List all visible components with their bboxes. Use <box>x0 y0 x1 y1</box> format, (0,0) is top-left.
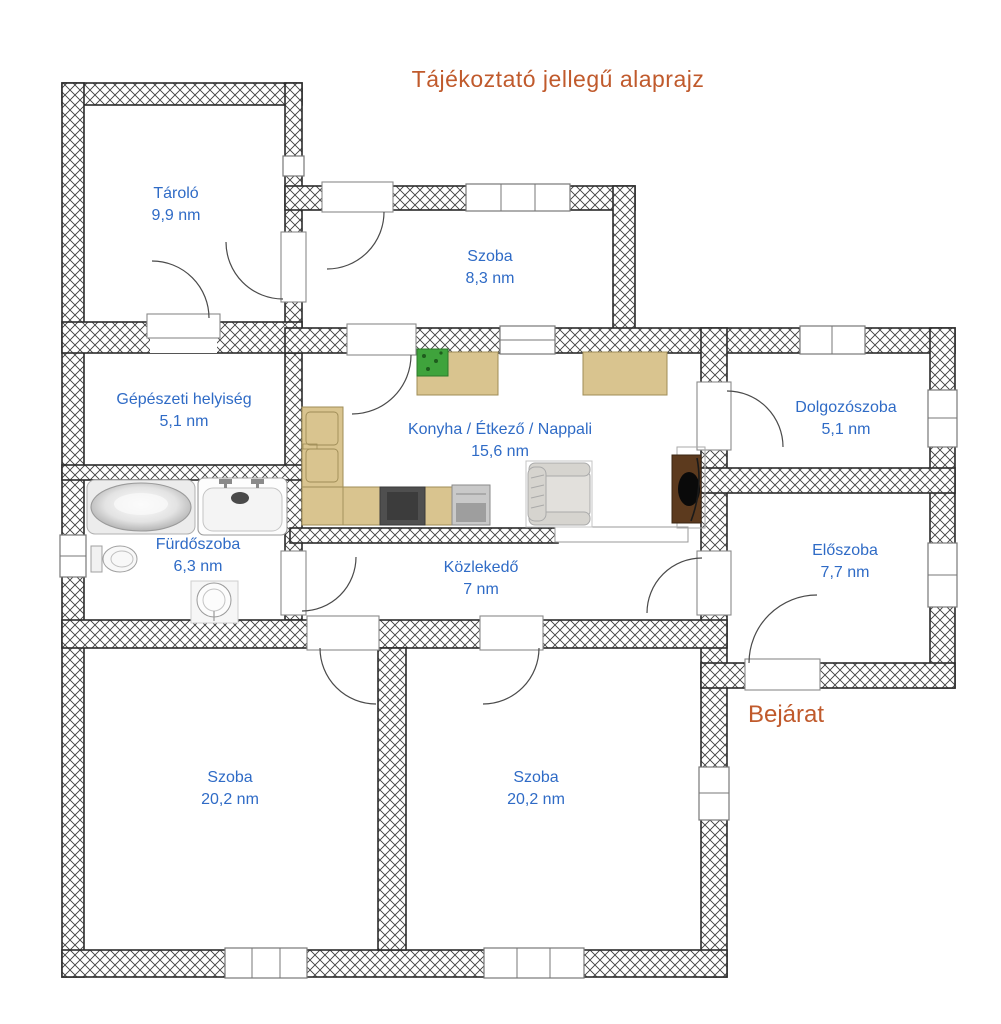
kitchen-sink <box>452 485 490 525</box>
door-szoba-bal <box>307 616 379 704</box>
room-label-szoba-felso: Szoba 8,3 nm <box>466 246 515 290</box>
plan-title: Tájékoztató jellegű alaprajz <box>412 66 705 93</box>
window-eloszoba <box>928 543 957 607</box>
bathtub <box>87 480 195 534</box>
room-name: Szoba <box>507 767 565 789</box>
door-tarolo-gepeszeti <box>147 261 220 353</box>
room-label-konyha: Konyha / Étkező / Nappali 15,6 nm <box>408 419 592 463</box>
plant <box>417 349 448 376</box>
desk-table <box>583 352 667 395</box>
tv-cabinet <box>672 447 705 528</box>
room-name: Tároló <box>152 183 201 205</box>
room-area: 7 nm <box>444 579 519 601</box>
room-name: Fürdőszoba <box>156 534 241 556</box>
washbasin-unit <box>198 478 287 535</box>
room-label-szoba-jobb: Szoba 20,2 nm <box>507 767 565 811</box>
window-tarolo <box>283 156 304 176</box>
room-area: 20,2 nm <box>201 789 259 811</box>
room-label-szoba-bal: Szoba 20,2 nm <box>201 767 259 811</box>
door-szoba-konyha <box>347 324 416 414</box>
door-szoba-felso-kulso <box>322 182 393 269</box>
room-area: 7,7 nm <box>812 562 878 584</box>
room-area: 20,2 nm <box>507 789 565 811</box>
floor-plan-page: Tájékoztató jellegű alaprajz Bejárat Tár… <box>0 0 1001 1024</box>
room-label-gepeszeti: Gépészeti helyiség 5,1 nm <box>116 389 251 433</box>
window-szoba-jobb-also <box>484 948 584 978</box>
entrance-label: Bejárat <box>748 701 824 729</box>
door-szoba-jobb <box>480 616 543 704</box>
room-label-kozlekedo: Közlekedő 7 nm <box>444 557 519 601</box>
window-szoba-bal-also <box>225 948 307 978</box>
room-area: 6,3 nm <box>156 556 241 578</box>
room-label-eloszoba: Előszoba 7,7 nm <box>812 540 878 584</box>
room-area: 15,6 nm <box>408 441 592 463</box>
floor-plan-drawing <box>0 0 1001 1024</box>
room-area: 5,1 nm <box>795 419 896 441</box>
toilet <box>91 546 137 572</box>
room-area: 8,3 nm <box>466 268 515 290</box>
window-dolgozoszoba-felso <box>800 326 865 354</box>
window-konyha-fal <box>500 326 555 354</box>
window-dolgozoszoba-jobb <box>928 390 957 447</box>
washbasin-round <box>191 581 238 623</box>
stove <box>380 487 425 525</box>
armchair <box>526 461 592 527</box>
room-label-tarolo: Tároló 9,9 nm <box>152 183 201 227</box>
room-label-dolgozoszoba: Dolgozószoba 5,1 nm <box>795 397 896 441</box>
open-passage-lintel <box>555 527 688 542</box>
room-name: Szoba <box>201 767 259 789</box>
room-label-furdoszoba: Fürdőszoba 6,3 nm <box>156 534 241 578</box>
door-eloszoba-kozlekedo <box>647 551 731 615</box>
room-name: Gépészeti helyiség <box>116 389 251 411</box>
window-szoba-jobb-oldal <box>699 767 729 820</box>
room-name: Szoba <box>466 246 515 268</box>
room-name: Közlekedő <box>444 557 519 579</box>
door-dolgozoszoba <box>697 382 783 450</box>
room-area: 5,1 nm <box>116 411 251 433</box>
room-name: Konyha / Étkező / Nappali <box>408 419 592 441</box>
kitchen-counter <box>302 487 452 525</box>
door-furdoszoba <box>281 551 356 615</box>
door-tarolo-szoba <box>226 232 306 302</box>
window-furdoszoba <box>60 535 86 577</box>
room-name: Előszoba <box>812 540 878 562</box>
room-name: Dolgozószoba <box>795 397 896 419</box>
room-area: 9,9 nm <box>152 205 201 227</box>
window-szoba-felso <box>466 184 570 211</box>
door-bejarat <box>745 595 820 690</box>
fridge-cabinet <box>302 407 343 487</box>
